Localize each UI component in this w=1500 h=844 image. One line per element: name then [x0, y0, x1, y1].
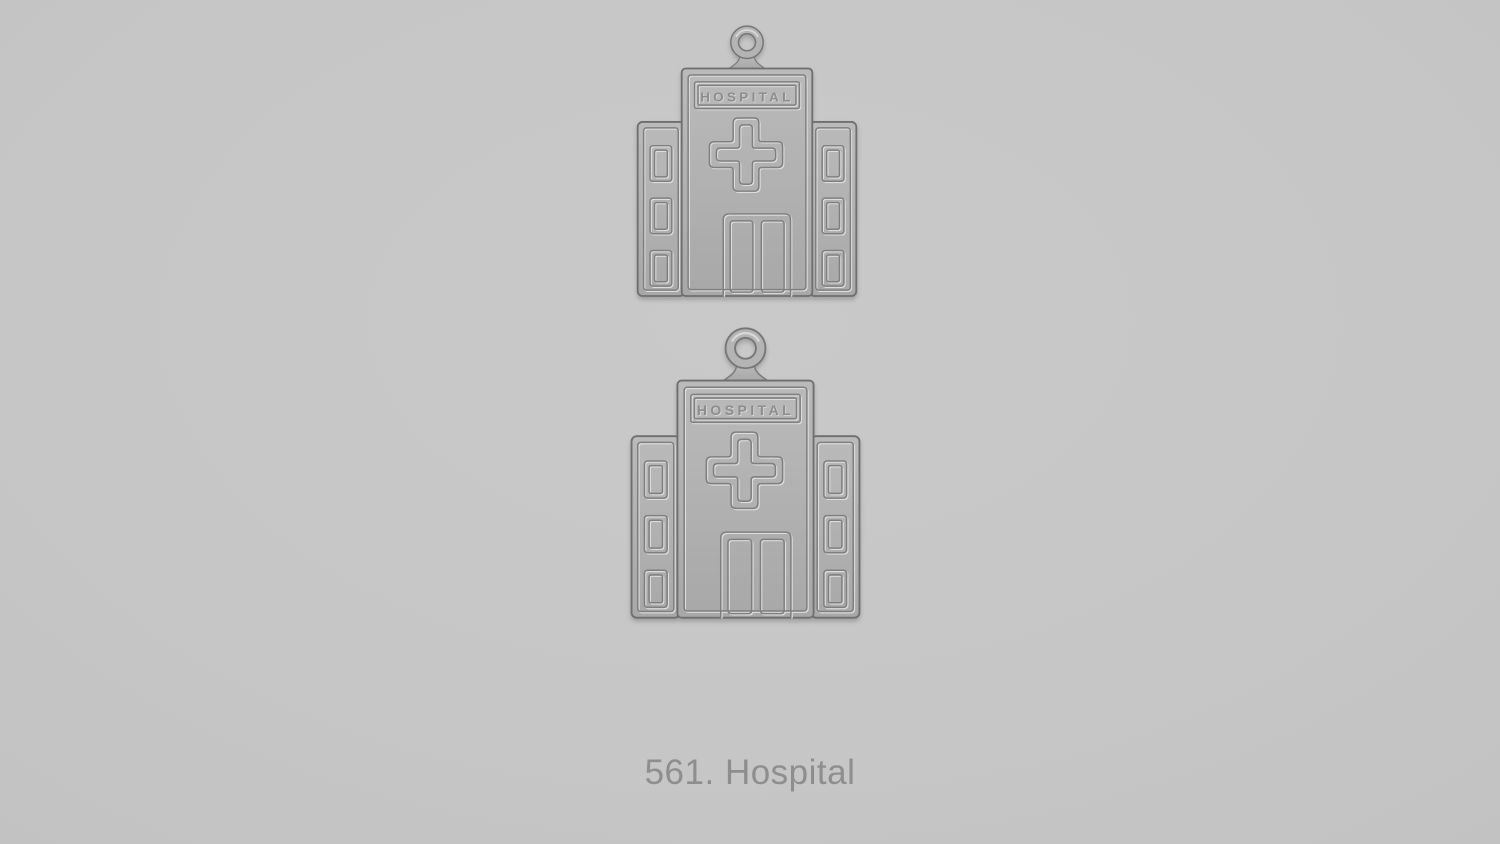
hospital-sign-text: HOSPITAL: [700, 90, 793, 105]
charm-render-stage: HOSPITAL HOSPITAL HOSPITAL HOSPITAL 561.…: [0, 0, 1500, 844]
charm-ring-icon: [729, 26, 765, 68]
hospital-charm-bottom: HOSPITAL HOSPITAL: [630, 335, 861, 622]
charm-ring-icon: [724, 328, 768, 380]
item-caption: 561. Hospital: [0, 753, 1500, 793]
hospital-charm-top: HOSPITAL HOSPITAL: [636, 25, 858, 300]
hospital-sign-text: HOSPITAL: [697, 402, 794, 418]
